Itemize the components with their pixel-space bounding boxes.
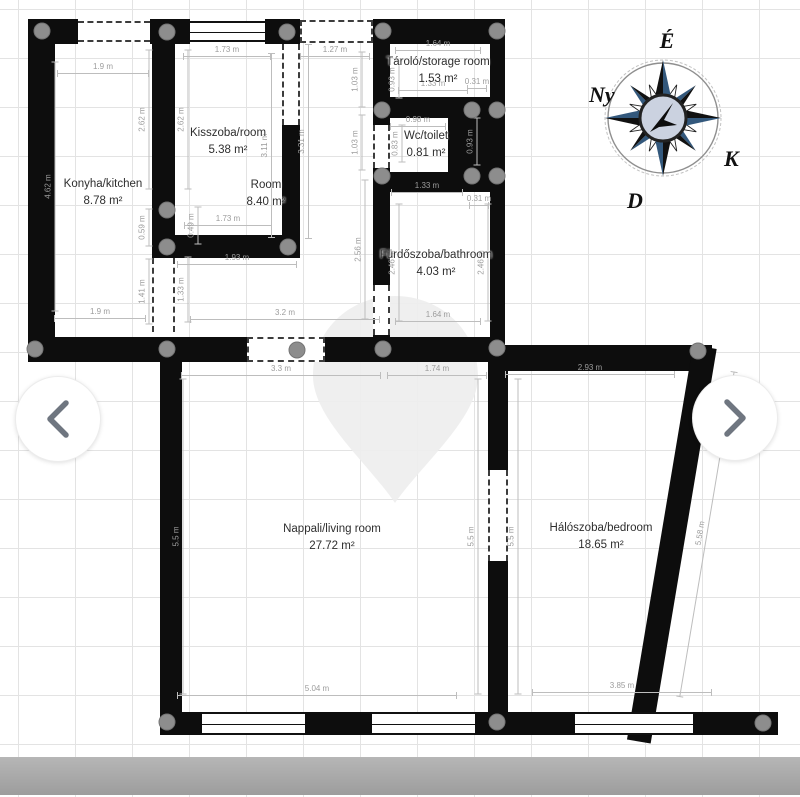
wall-corner-handle: [159, 714, 176, 731]
room-area: 4.03 m²: [376, 264, 496, 281]
room-name: Konyha/kitchen: [43, 176, 163, 193]
room-area: 0.81 m²: [366, 145, 486, 162]
room-label-wc: Wc/toilet 0.81 m²: [366, 128, 486, 163]
compass-north-label: É: [659, 28, 675, 53]
room-name: Fürdőszoba/bathroom: [376, 247, 496, 264]
wall-corner-handle: [374, 102, 391, 119]
wall-corner-handle: [690, 343, 707, 360]
floorplan-image: 1.9 m1.73 m1.27 m1.64 m1.33 m0.31 m0.98 …: [0, 0, 800, 797]
room-name: Kisszoba/room: [168, 125, 288, 142]
room-label-bathroom: Fürdőszoba/bathroom 4.03 m²: [376, 247, 496, 282]
room-area: 1.53 m²: [377, 71, 499, 88]
compass-east-label: K: [723, 146, 740, 171]
room-area: 8.78 m²: [43, 193, 163, 210]
room-name: Nappali/living room: [252, 521, 412, 538]
wall-corner-handle: [489, 23, 506, 40]
next-image-button[interactable]: [692, 375, 778, 461]
room-label-bedroom: Hálószoba/bedroom 18.65 m²: [521, 520, 681, 555]
wall-corner-handle: [464, 102, 481, 119]
scrollbar[interactable]: [0, 757, 800, 795]
wall-corner-handle: [489, 102, 506, 119]
wall-corner-handle: [374, 168, 391, 185]
room-label-living: Nappali/living room 27.72 m²: [252, 521, 412, 556]
wall-corner-handle: [489, 714, 506, 731]
wall-corner-handle: [489, 340, 506, 357]
chevron-left-icon: [41, 397, 75, 441]
compass-rose: É Ny K D: [575, 18, 751, 210]
compass-west-label: Ny: [588, 82, 615, 107]
wall-corner-handle: [27, 341, 44, 358]
wall-corner-handle: [159, 239, 176, 256]
room-label-hall-room: Room 8.40 m²: [206, 177, 326, 212]
wall-corner-handle: [375, 341, 392, 358]
room-label-kitchen: Konyha/kitchen 8.78 m²: [43, 176, 163, 211]
wall-corner-handle: [755, 715, 772, 732]
room-area: 27.72 m²: [252, 538, 412, 555]
room-name: Wc/toilet: [366, 128, 486, 145]
wall-corner-handle: [34, 23, 51, 40]
wall-corner-handle: [159, 341, 176, 358]
prev-image-button[interactable]: [15, 376, 101, 462]
compass-south-label: D: [626, 188, 643, 210]
wall-corner-handle: [289, 342, 306, 359]
wall-corner-handle: [489, 168, 506, 185]
room-label-kisszoba: Kisszoba/room 5.38 m²: [168, 125, 288, 160]
wall-corner-handle: [375, 23, 392, 40]
chevron-right-icon: [718, 396, 752, 440]
room-area: 8.40 m²: [206, 194, 326, 211]
room-label-storage: Tároló/storage room 1.53 m²: [377, 54, 499, 89]
room-area: 18.65 m²: [521, 537, 681, 554]
wall-corner-handle: [280, 239, 297, 256]
room-name: Hálószoba/bedroom: [521, 520, 681, 537]
wall-corner-handle: [279, 24, 296, 41]
room-area: 5.38 m²: [168, 142, 288, 159]
wall-corner-handle: [464, 168, 481, 185]
room-name: Tároló/storage room: [377, 54, 499, 71]
wall-corner-handle: [159, 24, 176, 41]
room-name: Room: [206, 177, 326, 194]
